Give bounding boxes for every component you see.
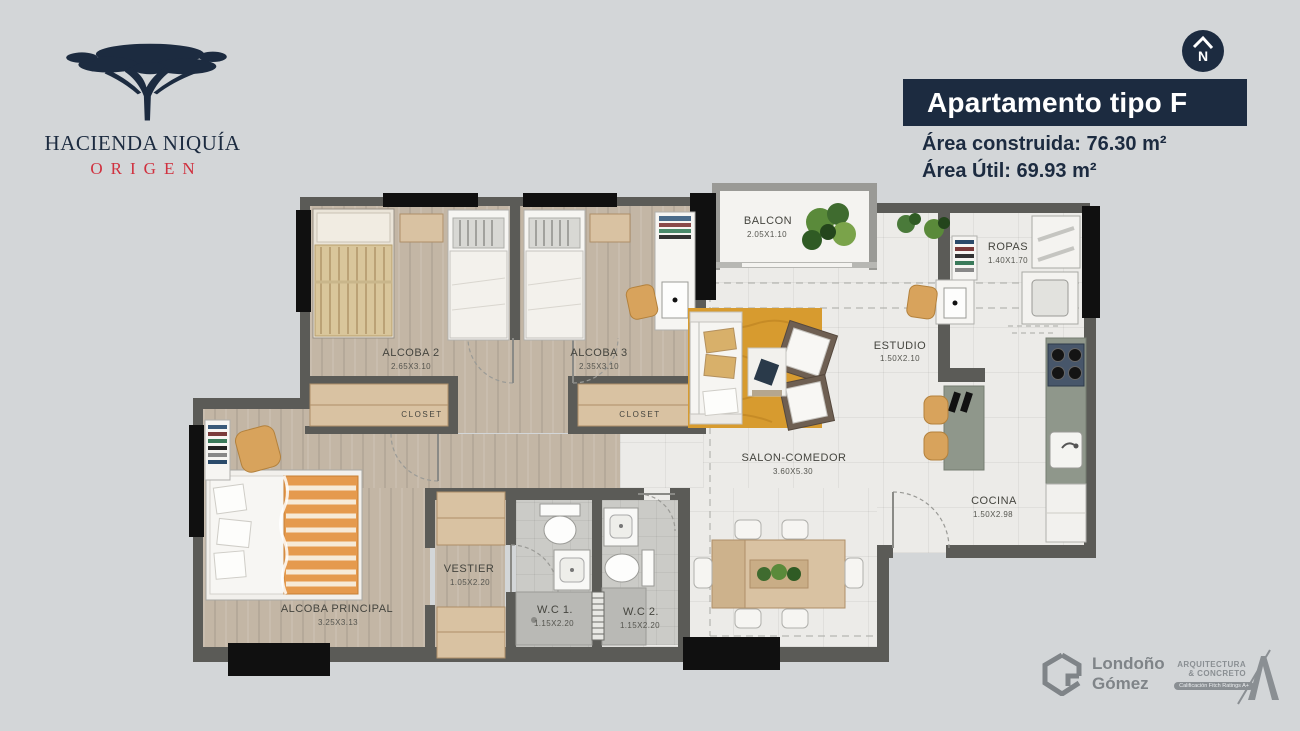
area-useful: Área Útil: 69.93 m² <box>922 158 1167 185</box>
developer-hexagon-icon <box>1042 652 1082 696</box>
floorplan-poster: ALCOBA 2 2.65X3.10 ALCOBA 3 2.35X3.10 CL… <box>0 0 1300 731</box>
bed-single-white <box>524 210 585 340</box>
coffee-table <box>748 348 786 396</box>
builder-name-line1: ARQUITECTURA <box>1177 660 1246 669</box>
room-label-principal: ALCOBA PRINCIPAL <box>281 603 393 615</box>
toilet <box>605 550 654 586</box>
balcony-plant <box>802 203 856 250</box>
room-label-salon: SALON-COMEDOR <box>742 452 847 464</box>
room-dims-principal: 3.25X3.13 <box>318 618 358 627</box>
sofa <box>690 312 742 424</box>
room-dims-balcon: 2.05X1.10 <box>747 230 787 239</box>
compass-icon: N <box>1182 30 1224 72</box>
room-dims-alcoba2: 2.65X3.10 <box>391 362 431 371</box>
room-label-alcoba2: ALCOBA 2 <box>382 347 439 359</box>
room-dims-cocina: 1.50X2.98 <box>973 510 1013 519</box>
laundry-shelf <box>1032 216 1080 268</box>
sink <box>554 550 590 590</box>
room-label-alcoba3: ALCOBA 3 <box>570 347 627 359</box>
bed-single-striped <box>313 209 394 338</box>
bed-double <box>206 470 362 600</box>
study-desk <box>936 280 974 324</box>
nightstand <box>400 214 443 242</box>
room-label-cocina: COCINA <box>971 495 1017 507</box>
tree-logo-icon <box>33 28 253 124</box>
nightstand <box>590 214 630 242</box>
kitchen-counter <box>1046 338 1086 542</box>
sink <box>604 508 638 546</box>
room-label-ropas: ROPAS <box>988 241 1028 253</box>
room-dims-alcoba3: 2.35X3.10 <box>579 362 619 371</box>
apartment-title-banner: Apartamento tipo F <box>903 79 1247 126</box>
brand-logo: HACIENDA NIQUÍA ORIGEN <box>25 28 260 179</box>
room-label-wc2: W.C 2. <box>623 606 659 618</box>
brand-title: HACIENDA NIQUÍA <box>25 131 260 156</box>
chair <box>233 424 283 475</box>
room-dims-salon: 3.60X5.30 <box>773 467 813 476</box>
kitchen-sink <box>1050 432 1082 468</box>
brand-subtitle: ORIGEN <box>25 159 260 179</box>
developer-name-line1: Londoño <box>1092 654 1165 674</box>
kitchen-island <box>944 386 984 470</box>
bookshelf <box>952 236 977 280</box>
dining-table <box>712 540 845 608</box>
bookshelf <box>205 420 230 480</box>
toilet <box>540 504 580 544</box>
armchair <box>779 375 835 431</box>
room-label-vestier: VESTIER <box>444 563 495 575</box>
room-label-closet-b: CLOSET <box>619 410 661 419</box>
room-dims-vestier: 1.05X2.20 <box>450 578 490 587</box>
apartment-title: Apartamento tipo F <box>927 87 1187 119</box>
developer-name-line2: Gómez <box>1092 674 1165 694</box>
room-label-wc1: W.C 1. <box>537 604 573 616</box>
area-info: Área construida: 76.30 m² Área Útil: 69.… <box>922 131 1167 185</box>
washing-machine <box>1022 272 1078 324</box>
room-label-balcon: BALCON <box>744 215 792 227</box>
closet-a <box>310 384 448 426</box>
closet-b <box>578 384 697 426</box>
room-dims-estudio: 1.50X2.10 <box>880 354 920 363</box>
builder-logo: ARQUITECTURA & CONCRETO Calificación Fit… <box>1170 648 1280 708</box>
chair <box>906 284 938 320</box>
room-dims-wc2: 1.15X2.20 <box>620 621 660 630</box>
room-dims-wc1: 1.15X2.20 <box>534 619 574 628</box>
developer-logo: Londoño Gómez <box>1042 652 1165 696</box>
builder-tagline: Calificación Fitch Ratings A+ <box>1174 682 1254 690</box>
room-label-estudio: ESTUDIO <box>874 340 926 352</box>
vestier-cabinets <box>437 492 505 658</box>
chair <box>625 283 659 320</box>
room-label-closet-a: CLOSET <box>401 410 443 419</box>
builder-name-line2: & CONCRETO <box>1177 669 1246 678</box>
compass-north-label: N <box>1198 48 1208 64</box>
room-dims-ropas: 1.40X1.70 <box>988 256 1028 265</box>
area-built: Área construida: 76.30 m² <box>922 131 1167 158</box>
bed-single-white <box>448 210 509 340</box>
